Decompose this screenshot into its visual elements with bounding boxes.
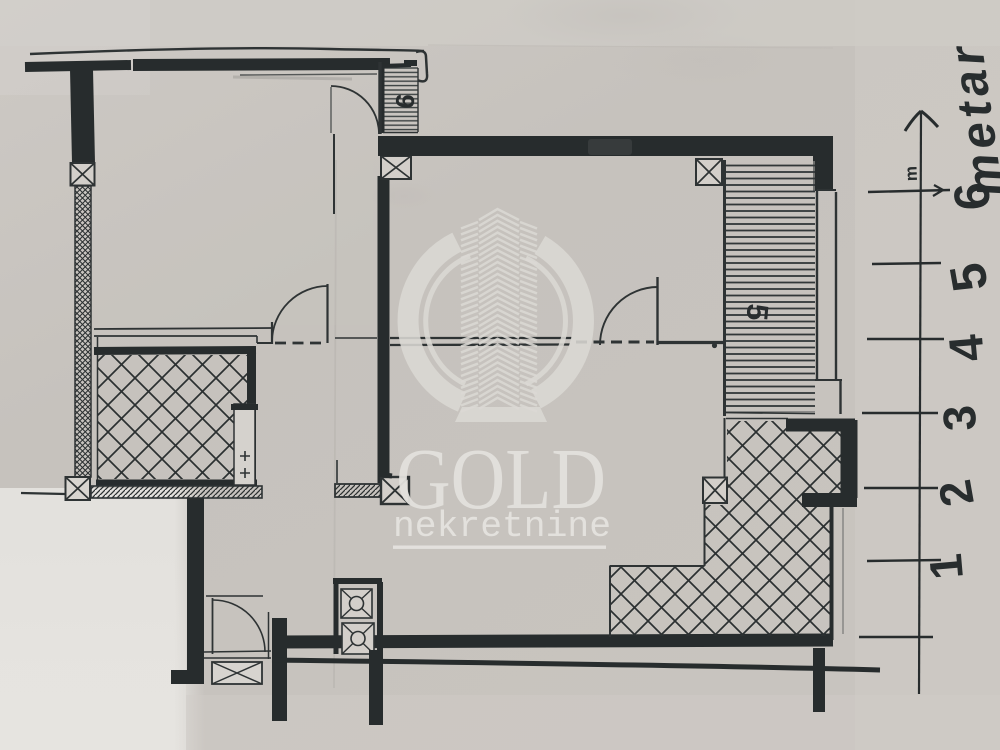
svg-text:4: 4 <box>940 332 995 364</box>
svg-text:1: 1 <box>919 552 973 582</box>
svg-text:5: 5 <box>740 302 774 322</box>
svg-text:m: m <box>901 166 921 182</box>
svg-text:3: 3 <box>933 404 986 432</box>
svg-text:nekretnine: nekretnine <box>393 506 611 547</box>
